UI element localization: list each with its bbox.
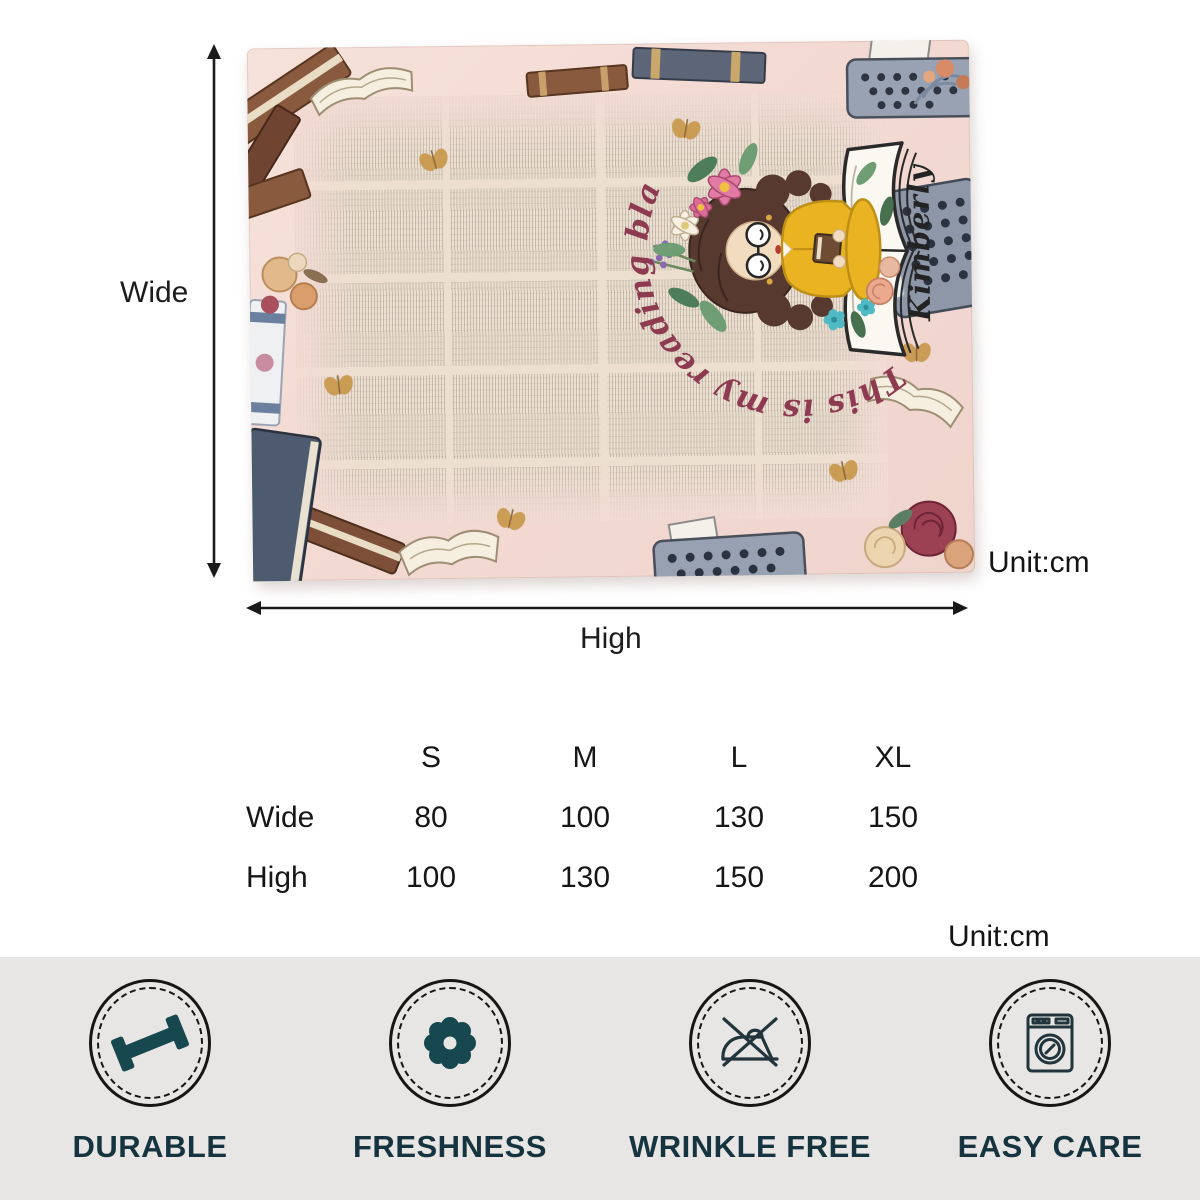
feature-circle — [989, 979, 1111, 1107]
size-column-header: S — [354, 728, 508, 788]
feature-circle — [689, 979, 811, 1107]
blanket-image: This is my reading blanket Kimberly — [247, 40, 975, 582]
table-value: 130 — [662, 788, 816, 848]
table-value: 150 — [816, 788, 970, 848]
table-row-label: Wide — [212, 788, 354, 848]
dashed-ring — [97, 987, 203, 1099]
feature-durable: DURABLE — [10, 979, 290, 1165]
feature-label: DURABLE — [72, 1129, 227, 1165]
table-value: 200 — [816, 848, 970, 908]
table-corner-cell — [212, 728, 354, 788]
blanket-center-design: This is my reading blanket Kimberly — [247, 40, 975, 582]
size-table: S M L XL Wide 80 100 130 150 High 100 13… — [212, 728, 972, 908]
size-column-header: M — [508, 728, 662, 788]
feature-label: WRINKLE FREE — [629, 1129, 871, 1165]
table-value: 80 — [354, 788, 508, 848]
name-text: Kimberly — [901, 163, 937, 322]
feature-label: EASY CARE — [958, 1129, 1143, 1165]
dashed-ring — [697, 987, 803, 1099]
table-value: 150 — [662, 848, 816, 908]
features-bar: DURABLE FRESHNESS — [0, 957, 1200, 1200]
feature-label: FRESHNESS — [353, 1129, 547, 1165]
wide-dimension-arrow — [202, 44, 226, 578]
size-column-header: L — [662, 728, 816, 788]
feature-wrinkle-free: WRINKLE FREE — [610, 979, 890, 1165]
dashed-ring — [397, 987, 503, 1099]
high-dimension-arrow — [246, 596, 968, 620]
dashed-ring — [997, 987, 1103, 1099]
size-column-header: XL — [816, 728, 970, 788]
feature-easy-care: EASY CARE — [910, 979, 1190, 1165]
product-size-infographic: This is my reading blanket Kimberly Wide… — [0, 0, 1200, 1200]
feature-circle — [389, 979, 511, 1107]
table-value: 130 — [508, 848, 662, 908]
wide-dimension-label: Wide — [120, 276, 188, 310]
feature-circle — [89, 979, 211, 1107]
high-dimension-label: High — [580, 622, 642, 656]
table-value: 100 — [354, 848, 508, 908]
unit-label-top: Unit:cm — [988, 546, 1090, 580]
feature-freshness: FRESHNESS — [310, 979, 590, 1165]
table-row-label: High — [212, 848, 354, 908]
table-value: 100 — [508, 788, 662, 848]
unit-label-bottom: Unit:cm — [948, 920, 1050, 954]
